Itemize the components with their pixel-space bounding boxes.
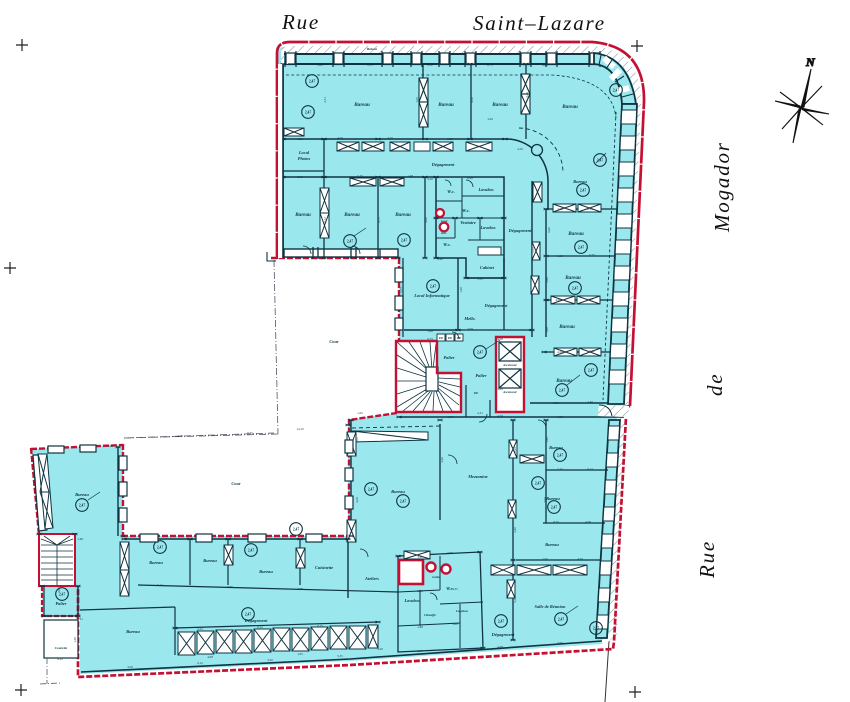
svg-text:Bureau: Bureau — [202, 558, 217, 563]
svg-text:Rue: Rue — [695, 540, 719, 579]
svg-text:2,47: 2,47 — [580, 188, 586, 192]
svg-text:Palier: Palier — [476, 373, 487, 378]
svg-text:2,47: 2,47 — [559, 388, 565, 392]
svg-text:Mogador: Mogador — [710, 141, 734, 233]
svg-text:2,47: 2,47 — [535, 481, 541, 485]
svg-text:2,47: 2,47 — [613, 88, 619, 92]
svg-text:Ascenseur: Ascenseur — [502, 390, 517, 394]
svg-text:2,47: 2,47 — [157, 545, 163, 549]
svg-text:Local Informatique: Local Informatique — [413, 293, 450, 298]
svg-text:2,47: 2,47 — [572, 286, 578, 290]
svg-text:Lavabos: Lavabos — [403, 598, 419, 603]
svg-text:Palier: Palier — [56, 601, 67, 606]
svg-text:2,47: 2,47 — [305, 110, 311, 114]
svg-text:P.P.: P.P. — [457, 336, 462, 340]
svg-text:Gaine: Gaine — [432, 575, 440, 579]
svg-text:2,47: 2,47 — [578, 245, 584, 249]
svg-text:Lavabos: Lavabos — [455, 609, 469, 613]
svg-text:P.P.: P.P. — [439, 336, 444, 340]
svg-text:Bureau: Bureau — [564, 276, 581, 281]
svg-text:2,47: 2,47 — [557, 453, 563, 457]
svg-text:2,47: 2,47 — [248, 548, 254, 552]
svg-text:Cuisinette: Cuisinette — [315, 565, 333, 570]
svg-text:2,47: 2,47 — [593, 626, 599, 630]
svg-text:W.c.: W.c. — [447, 189, 455, 194]
svg-text:Photos: Photos — [298, 156, 311, 161]
svg-text:2,47: 2,47 — [79, 503, 85, 507]
svg-text:Bureau: Bureau — [294, 213, 311, 218]
svg-text:Bureau: Bureau — [437, 103, 454, 108]
svg-text:2,47: 2,47 — [401, 238, 407, 242]
svg-text:Cour: Cour — [231, 481, 241, 486]
svg-text:N: N — [805, 55, 816, 69]
svg-text:Rue: Rue — [281, 10, 320, 34]
svg-text:2,47: 2,47 — [498, 619, 504, 623]
svg-text:Cour: Cour — [329, 339, 339, 344]
svg-text:P.P.: P.P. — [474, 391, 479, 395]
svg-text:tech.: tech. — [441, 232, 447, 235]
svg-text:Bureau: Bureau — [343, 213, 360, 218]
svg-text:2,47: 2,47 — [551, 505, 557, 509]
svg-text:2,47: 2,47 — [368, 487, 374, 491]
svg-text:Saint–Lazare: Saint–Lazare — [473, 11, 606, 35]
svg-text:Vestiaire: Vestiaire — [460, 220, 476, 225]
svg-text:Bureau: Bureau — [125, 629, 140, 634]
svg-text:2,47: 2,47 — [309, 79, 315, 83]
svg-text:Bureau: Bureau — [567, 232, 584, 237]
svg-text:Bureau: Bureau — [544, 542, 559, 547]
svg-text:Salle de Réunion: Salle de Réunion — [535, 604, 567, 609]
svg-text:Bureau: Bureau — [390, 489, 405, 494]
svg-text:Mezzanine: Mezzanine — [467, 474, 488, 479]
svg-text:Lavabos: Lavabos — [477, 187, 493, 192]
svg-text:Dégagement: Dégagement — [508, 228, 532, 233]
svg-text:Bureau: Bureau — [572, 179, 587, 184]
svg-text:Dégagement: Dégagement — [491, 632, 515, 637]
svg-text:2,47: 2,47 — [293, 527, 299, 531]
svg-text:2,47: 2,47 — [477, 350, 483, 354]
svg-text:P.P.: P.P. — [448, 336, 453, 340]
svg-text:2,47: 2,47 — [430, 284, 436, 288]
svg-text:Chauffe: Chauffe — [424, 613, 436, 617]
svg-text:Bureau: Bureau — [74, 492, 89, 497]
svg-text:Dégagement: Dégagement — [431, 162, 455, 167]
svg-text:Melle.: Melle. — [463, 316, 475, 321]
svg-text:Bureau: Bureau — [258, 569, 273, 574]
svg-text:Bureau: Bureau — [394, 213, 411, 218]
svg-text:Bureau: Bureau — [353, 103, 370, 108]
svg-text:2,47: 2,47 — [558, 617, 564, 621]
svg-text:2,47: 2,47 — [400, 499, 406, 503]
svg-text:Courette: Courette — [55, 646, 68, 650]
svg-text:Bureau: Bureau — [561, 105, 578, 110]
svg-text:Bureau: Bureau — [558, 325, 575, 330]
svg-text:Local: Local — [298, 150, 310, 155]
svg-text:Balcon: Balcon — [366, 47, 377, 51]
svg-text:W.c.: W.c. — [443, 242, 451, 247]
svg-text:Ascenseur: Ascenseur — [502, 363, 517, 367]
svg-text:2,47: 2,47 — [347, 239, 353, 243]
svg-text:Cabinet: Cabinet — [480, 265, 495, 270]
svg-text:Dégagement: Dégagement — [484, 303, 508, 308]
svg-text:Lavabos: Lavabos — [479, 225, 495, 230]
svg-text:Bureau: Bureau — [148, 560, 163, 565]
svg-text:de: de — [703, 373, 727, 396]
svg-text:Local: Local — [440, 220, 448, 223]
svg-text:W.c.: W.c. — [462, 208, 470, 213]
svg-text:Bureau: Bureau — [545, 496, 560, 501]
svg-text:2,47: 2,47 — [588, 368, 594, 372]
svg-text:Palier: Palier — [444, 355, 455, 360]
svg-text:Ateliers: Ateliers — [364, 576, 379, 581]
svg-text:Bureau: Bureau — [491, 103, 508, 108]
svg-text:2,47: 2,47 — [245, 612, 251, 616]
